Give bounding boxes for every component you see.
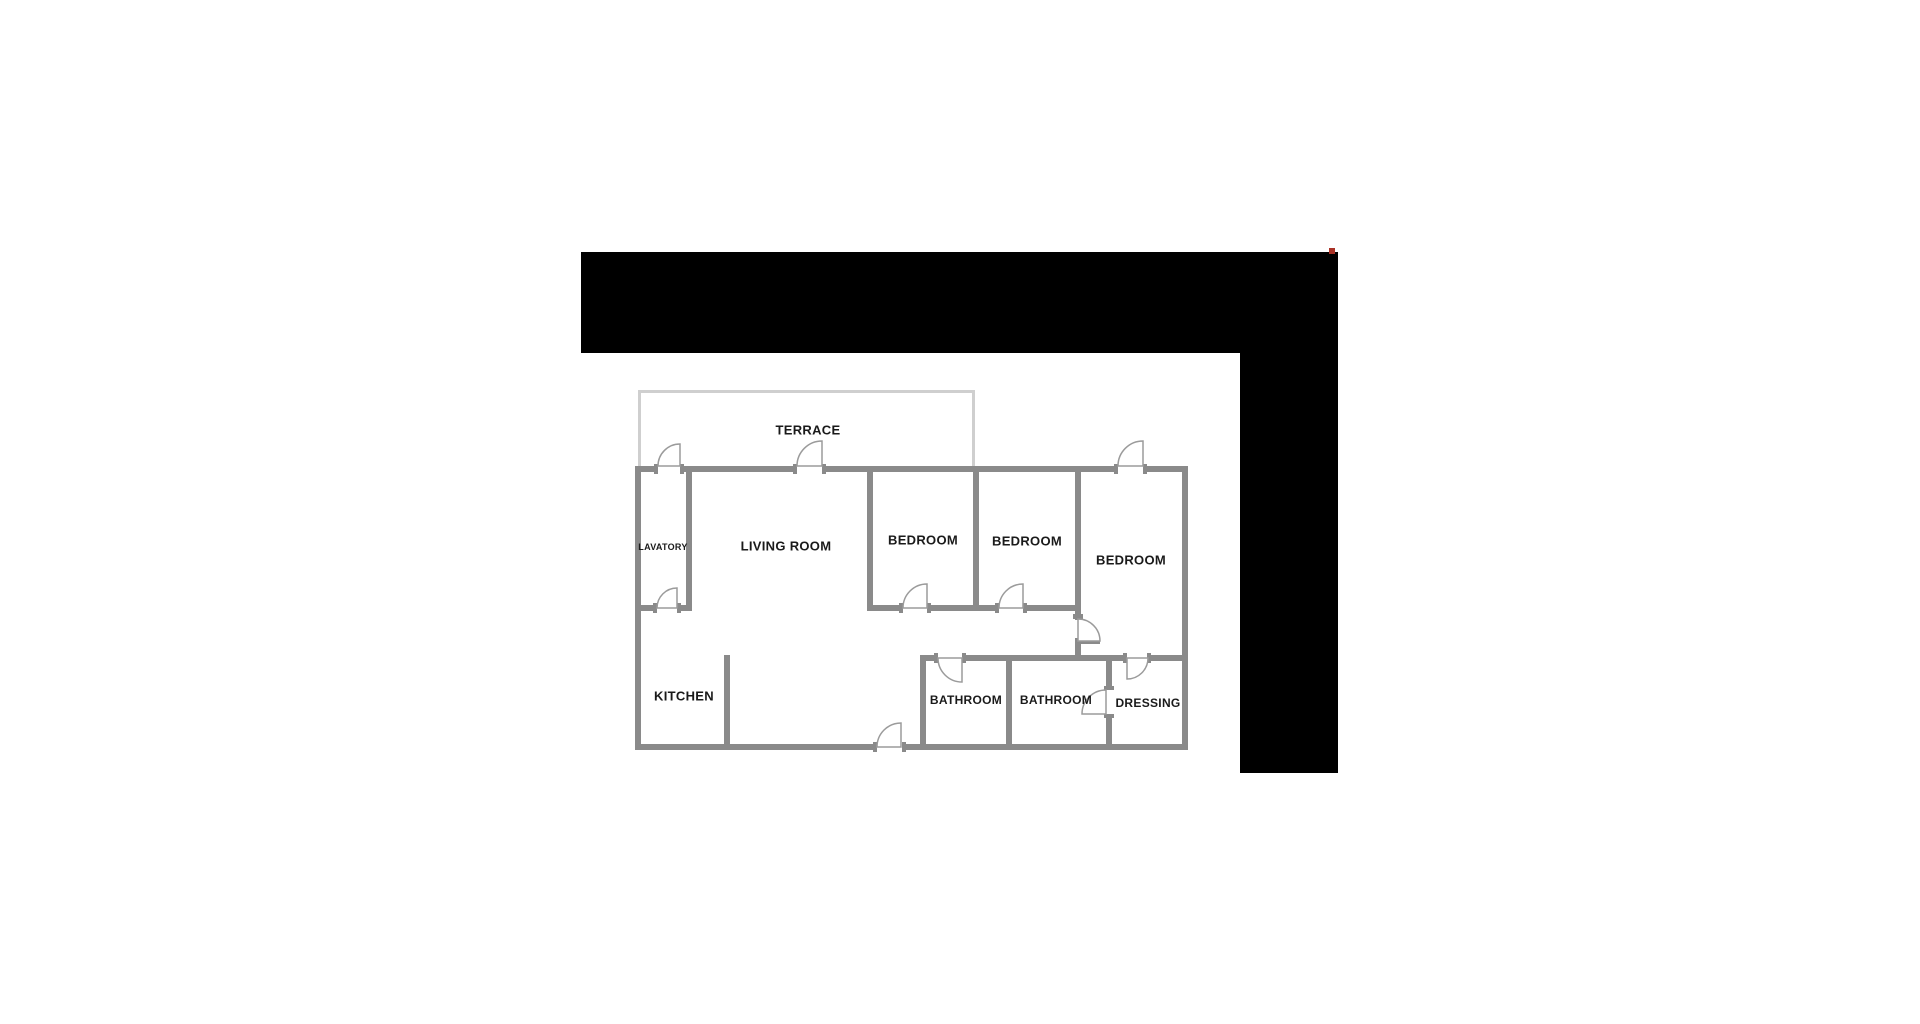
- floorplan-drawing: [0, 0, 1920, 1024]
- page: CASTILLOHOMES REAL ESTATE CH1252: [0, 0, 1920, 1024]
- door-arcs: [657, 441, 1148, 747]
